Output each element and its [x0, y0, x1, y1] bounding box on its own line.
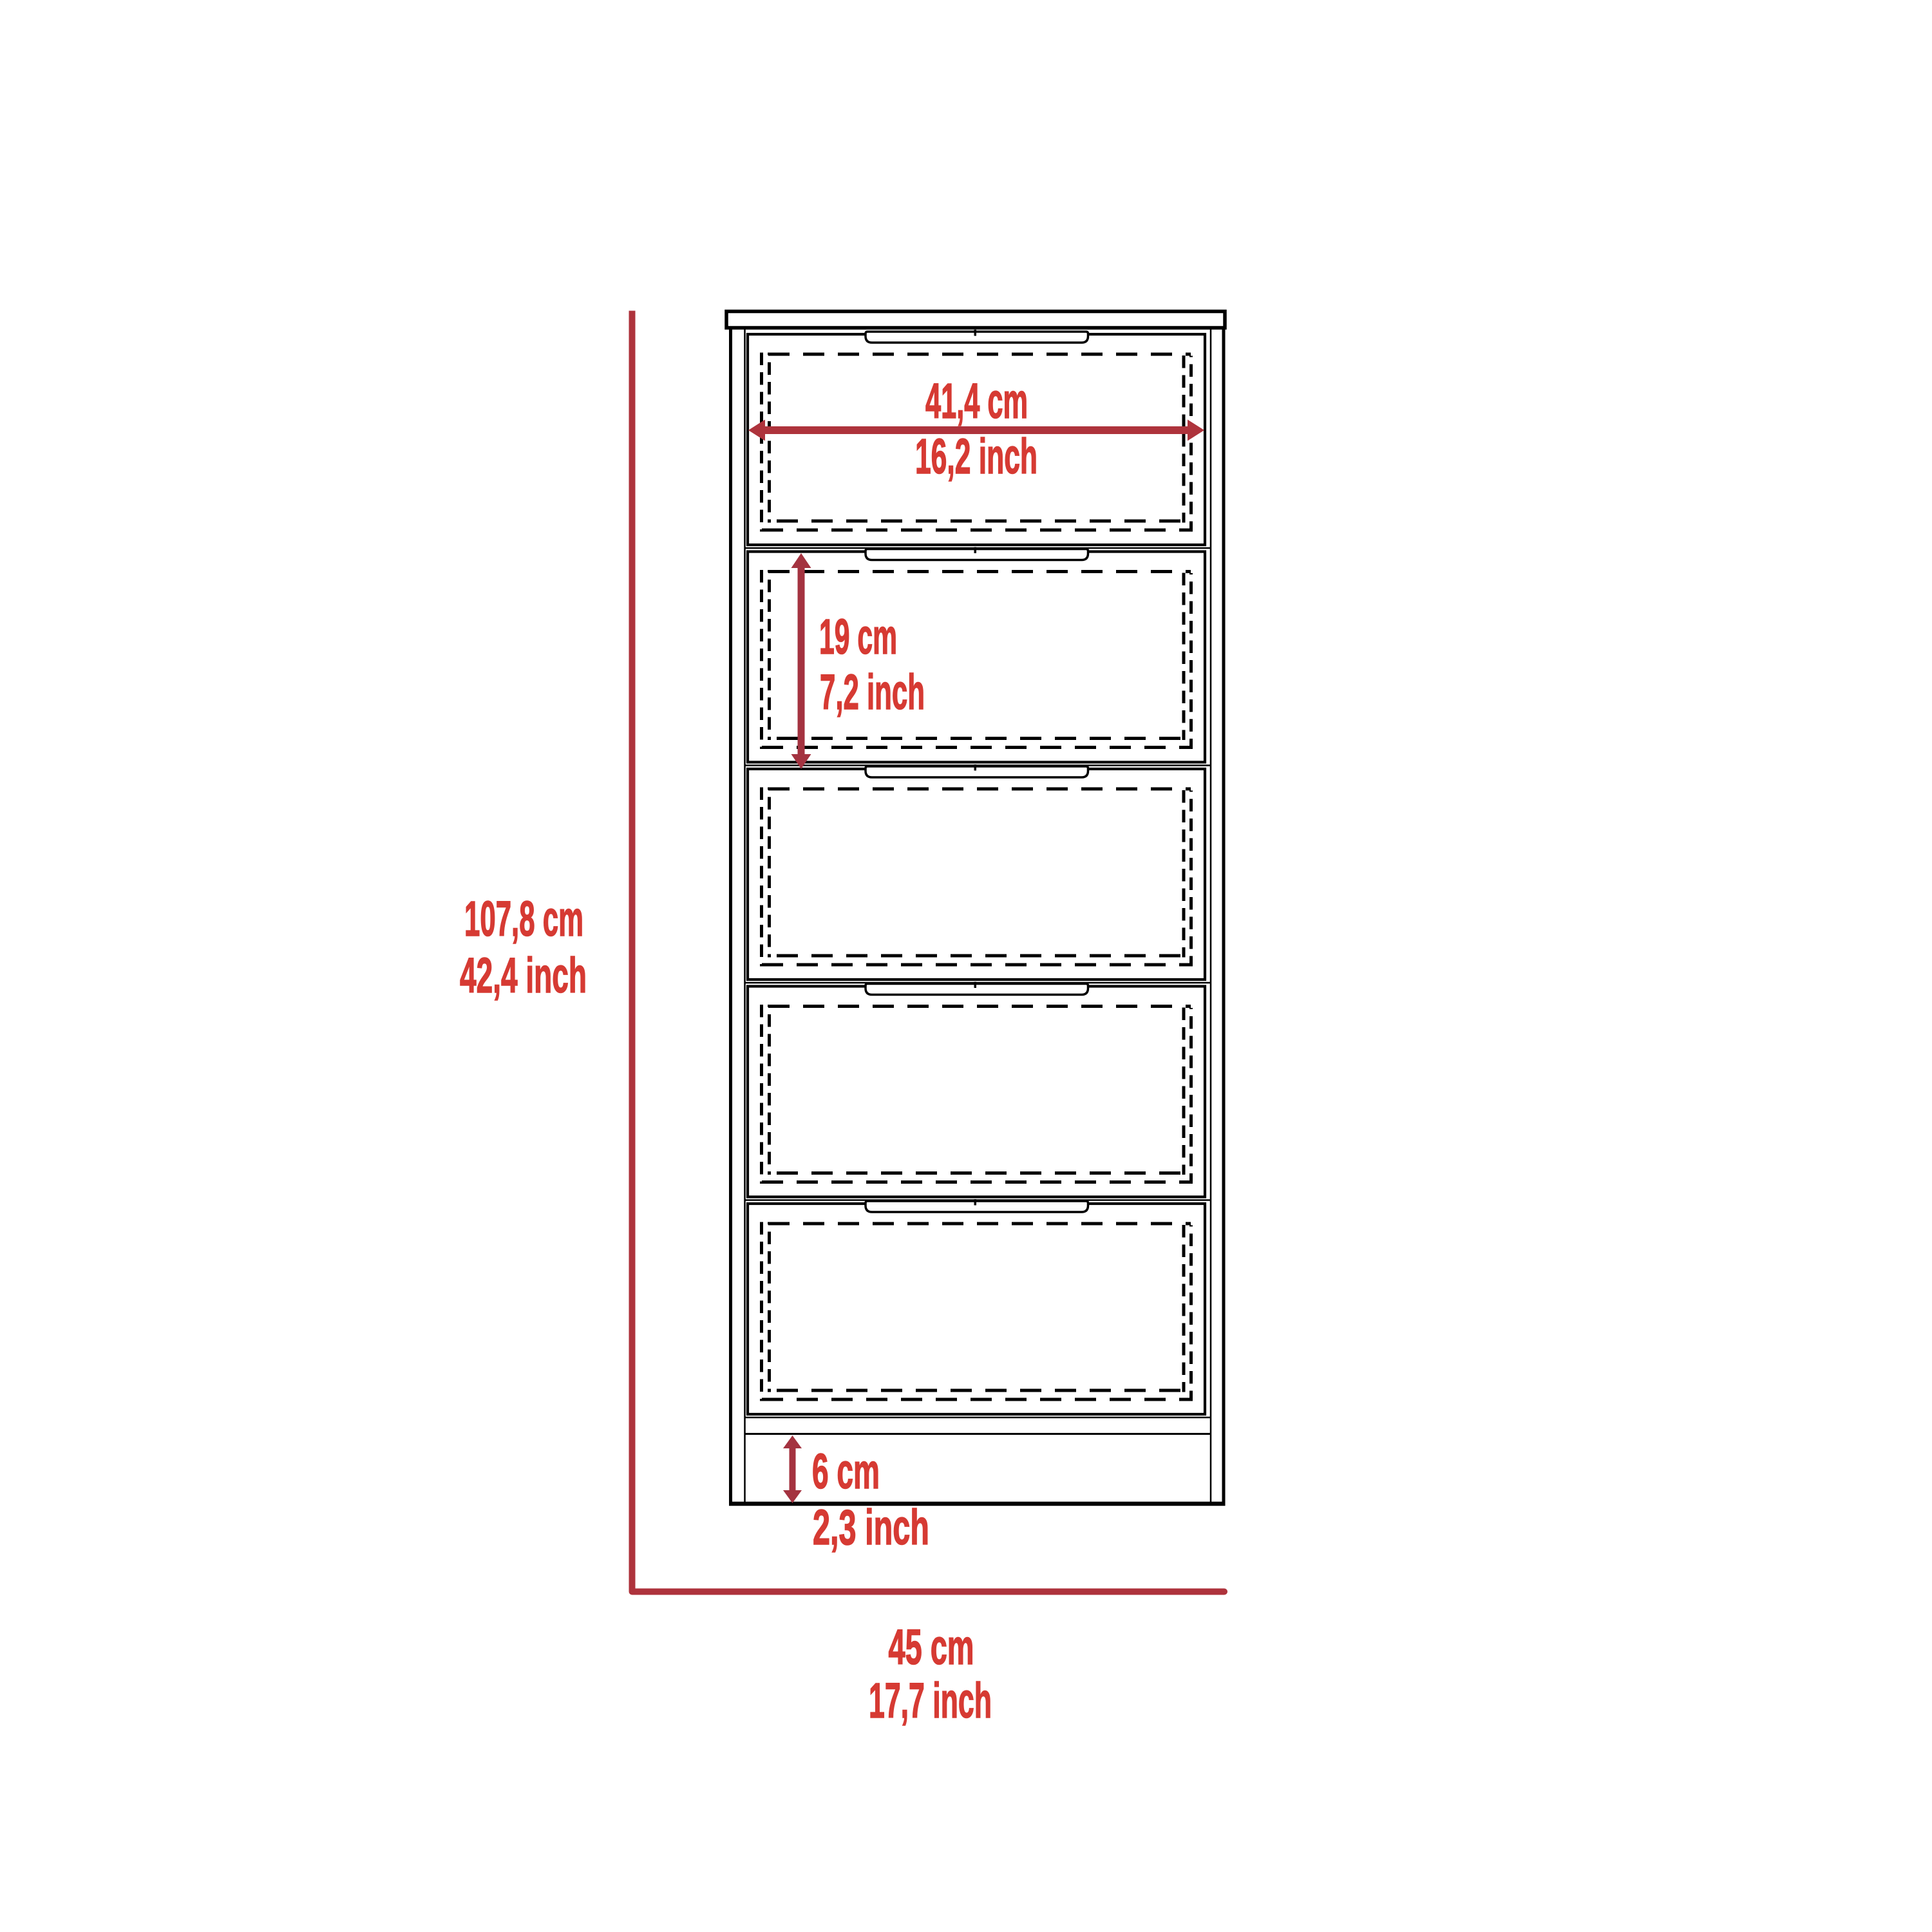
svg-text:17,7 inch: 17,7 inch [869, 1673, 992, 1728]
svg-text:19 cm: 19 cm [819, 610, 897, 665]
svg-text:6 cm: 6 cm [812, 1444, 880, 1499]
svg-text:41,4 cm: 41,4 cm [925, 374, 1028, 429]
svg-text:45 cm: 45 cm [888, 1619, 974, 1675]
svg-text:107,8 cm: 107,8 cm [464, 891, 583, 947]
svg-text:42,4 inch: 42,4 inch [460, 949, 587, 1003]
svg-text:2,3 inch: 2,3 inch [813, 1500, 929, 1555]
svg-text:16,2 inch: 16,2 inch [915, 429, 1037, 484]
svg-text:7,2 inch: 7,2 inch [820, 665, 925, 720]
